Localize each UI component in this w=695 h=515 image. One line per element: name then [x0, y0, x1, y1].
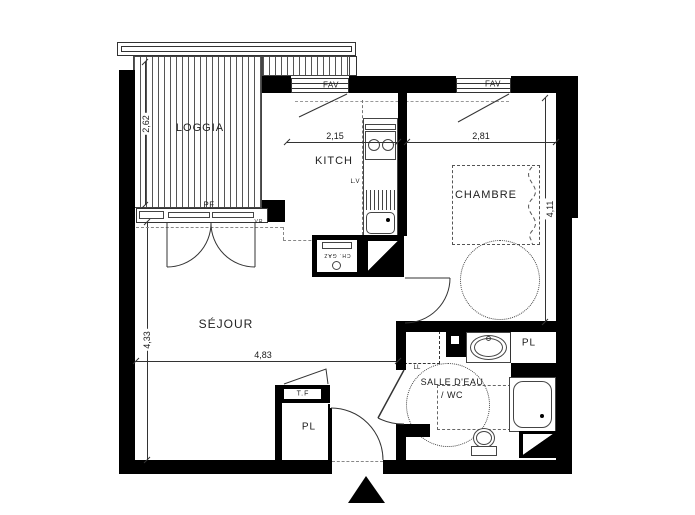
loggia-railing-right-drop	[349, 56, 357, 76]
beam-line-living	[136, 227, 283, 228]
label-french-door: PF	[203, 201, 214, 210]
french-door-arc-right	[211, 223, 255, 267]
wall-left	[119, 70, 135, 474]
wall-kitchen-bedroom	[398, 93, 407, 236]
label-roller-shutter: VR	[255, 219, 264, 225]
dim-living-width: 4,83	[252, 350, 274, 360]
entrance-triangle-icon	[348, 476, 385, 503]
dim-line-bedroom-width	[407, 142, 556, 143]
kitchen-sink	[366, 212, 395, 234]
dim-bedroom-width: 2,81	[470, 131, 492, 141]
cooktop-burner-left	[368, 139, 380, 151]
cooktop-control-strip	[365, 124, 396, 130]
dim-kitchen-width: 2,15	[324, 131, 346, 141]
bedroom-window-casement	[458, 94, 509, 122]
floor-plan: LOGGIA KITCH CHAMBRE SÉJOUR SALLE D'EAU …	[0, 0, 695, 515]
bed-outline	[452, 165, 540, 245]
label-gas-boiler: CH. GAZ	[323, 252, 350, 258]
label-dishwasher: L.V	[350, 179, 359, 185]
toilet-bowl-inner	[476, 431, 492, 445]
kitchen-window-casement	[299, 94, 347, 117]
kitchen-window	[291, 78, 349, 93]
entry-door-leaf	[330, 408, 332, 460]
dim-living-height: 4,33	[142, 329, 152, 351]
duct-bathroom-symbol	[523, 434, 553, 455]
label-window-bedroom: FAV	[485, 80, 501, 89]
dim-line-living-width	[136, 361, 398, 362]
wall-bathroom-west-lower	[396, 424, 406, 464]
bathroom-door-leaf	[378, 370, 404, 418]
wall-under-bathroom-closet	[511, 363, 556, 377]
loggia-floor-hatch-strip	[262, 56, 350, 76]
kitchen-open-boundary	[362, 100, 363, 235]
bedroom-turning-circle	[460, 240, 540, 320]
room-label-bathroom-line2: / WC	[441, 390, 463, 400]
closet-label-entry: PL	[302, 422, 316, 433]
french-door-leaf-panel-left	[168, 212, 210, 218]
wall-bathroom-west-upper	[396, 321, 406, 370]
drainboard	[366, 190, 395, 210]
room-label-living: SÉJOUR	[199, 317, 254, 331]
wall-top-a	[262, 76, 291, 93]
label-washing-machine: LL	[414, 365, 421, 371]
duct-kitchen-symbol	[368, 241, 398, 271]
entry-door-arc	[331, 408, 383, 460]
wall-right-pier	[572, 76, 578, 218]
bathroom-pillar-inset	[451, 336, 459, 344]
dim-bedroom-height: 4,11	[545, 199, 555, 220]
bedroom-window	[456, 78, 511, 93]
wall-top-b	[349, 76, 456, 93]
gas-boiler-dial	[332, 261, 341, 270]
entry-threshold	[332, 461, 383, 462]
wall-bathroom-north	[396, 321, 557, 332]
room-label-bedroom: CHAMBRE	[455, 189, 517, 201]
wall-bottom-left	[119, 460, 332, 474]
electrical-panel-flap	[284, 369, 328, 384]
room-label-bathroom-line1: SALLE D'EAU	[421, 377, 484, 387]
room-label-kitchen: KITCH	[315, 155, 353, 167]
bedroom-door-arc	[405, 278, 450, 323]
washing-machine-outline	[404, 331, 440, 364]
gas-boiler-vent	[322, 242, 352, 249]
french-door-side-panel	[139, 211, 164, 219]
dim-line-kitchen-width	[287, 142, 398, 143]
label-window-kitchen: FAV	[323, 81, 339, 90]
beam-line-jog	[283, 227, 284, 240]
label-electrical-panel: T.F	[297, 391, 310, 398]
french-door-arc-left	[167, 223, 211, 267]
french-door-leaf-panel-right	[212, 212, 254, 218]
shower-basin	[513, 381, 552, 428]
wall-bottom-right	[383, 460, 572, 474]
closet-label-bathroom: PL	[522, 338, 536, 349]
toilet-tank	[471, 446, 497, 456]
loggia-railing-inner	[121, 46, 352, 52]
washbasin-faucet	[486, 336, 491, 341]
shower-drain	[540, 414, 544, 418]
sink-drain	[386, 218, 390, 222]
wall-right	[556, 76, 572, 474]
room-label-loggia: LOGGIA	[176, 122, 224, 134]
dim-loggia-height: 2,62	[141, 113, 151, 135]
bathroom-closet-divider	[510, 332, 511, 363]
wall-bathroom-west-return	[406, 424, 430, 437]
cooktop-burner-right	[382, 139, 394, 151]
